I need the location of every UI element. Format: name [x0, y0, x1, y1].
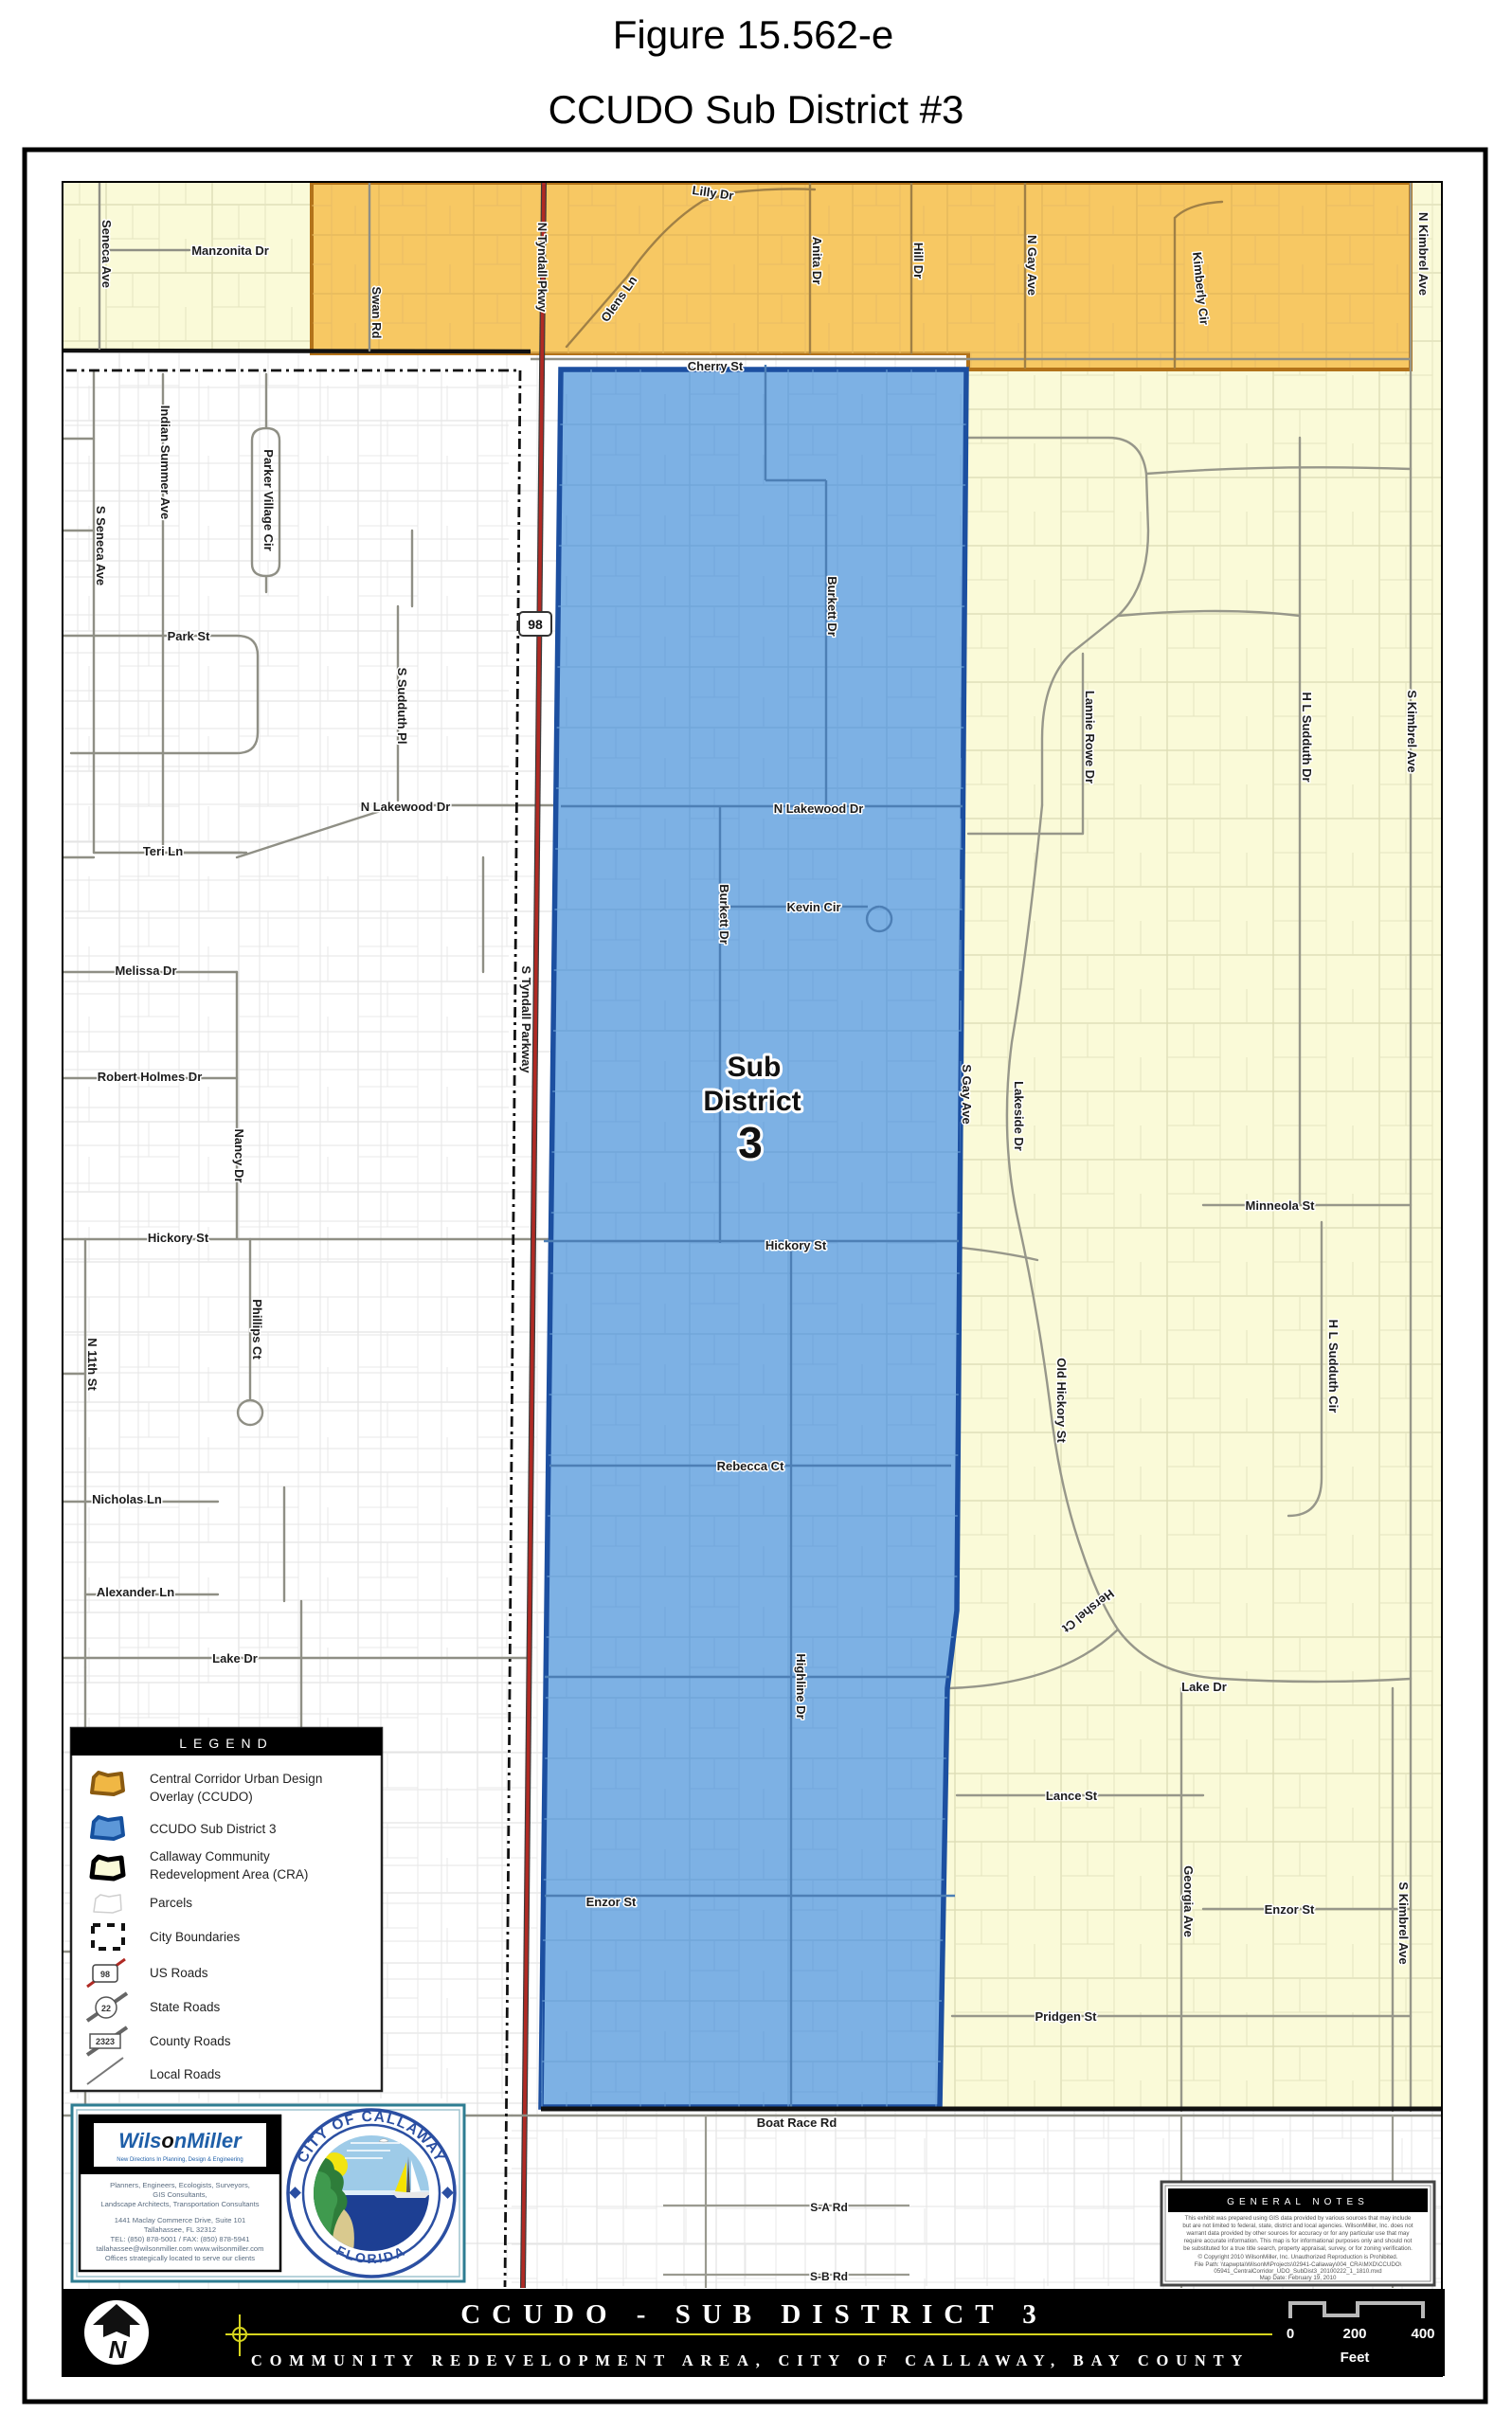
svg-text:Parcels: Parcels	[150, 1896, 192, 1910]
svg-text:Callaway Community: Callaway Community	[150, 1849, 270, 1864]
svg-text:1441 Maclay Commerce Drive, Su: 1441 Maclay Commerce Drive, Suite 101	[115, 2216, 245, 2224]
svg-text:Offices strategically located: Offices strategically located to serve o…	[105, 2254, 255, 2262]
svg-text:State Roads: State Roads	[150, 2000, 221, 2014]
svg-text:Georgia Ave: Georgia Ave	[1181, 1865, 1196, 1937]
svg-text:Indian Summer Ave: Indian Summer Ave	[158, 405, 172, 519]
svg-text:New Directions In Planning, De: New Directions In Planning, Design & Eng…	[117, 2157, 243, 2163]
svg-text:warrant data provided by other: warrant data provided by other sources f…	[1186, 2230, 1411, 2237]
svg-text:N Lakewood Dr: N Lakewood Dr	[774, 801, 864, 816]
svg-text:require accurate information.: require accurate information. This map i…	[1184, 2238, 1413, 2244]
svg-text:but are not limited to federal: but are not limited to federal, state, d…	[1182, 2223, 1413, 2229]
svg-text:H L Sudduth Dr: H L Sudduth Dr	[1300, 692, 1314, 782]
svg-text:Anita Dr: Anita Dr	[810, 237, 824, 285]
svg-text:0: 0	[1287, 2326, 1294, 2342]
svg-text:Cherry St: Cherry St	[688, 359, 744, 373]
svg-text:Kevin Cir: Kevin Cir	[786, 900, 840, 914]
svg-text:District: District	[703, 1086, 801, 1117]
svg-text:Enzor St: Enzor St	[586, 1895, 637, 1909]
svg-text:City Boundaries: City Boundaries	[150, 1930, 241, 1944]
svg-text:CCUDO Sub District #3: CCUDO Sub District #3	[549, 87, 964, 132]
svg-text:Lake Dr: Lake Dr	[1181, 1680, 1227, 1694]
svg-text:Rebecca Ct: Rebecca Ct	[717, 1459, 784, 1473]
svg-text:TEL: (850) 878-5001 / FAX: (85: TEL: (850) 878-5001 / FAX: (850) 878-594…	[111, 2235, 250, 2243]
svg-text:S Seneca Ave: S Seneca Ave	[94, 506, 108, 585]
svg-text:N Lakewood Dr: N Lakewood Dr	[361, 800, 451, 814]
svg-text:Local Roads: Local Roads	[150, 2067, 221, 2081]
svg-text:400: 400	[1411, 2326, 1434, 2342]
svg-text:S Gay Ave: S Gay Ave	[960, 1064, 974, 1124]
svg-text:CCUDO Sub District 3: CCUDO Sub District 3	[150, 1822, 277, 1836]
svg-text:© Copyright 2010 WilsonMiller,: © Copyright 2010 WilsonMiller, Inc. Unau…	[1198, 2254, 1398, 2260]
svg-text:Old Hickory St: Old Hickory St	[1054, 1358, 1069, 1443]
svg-text:Pridgen St: Pridgen St	[1035, 2009, 1097, 2024]
svg-text:S Kimbrel Ave: S Kimbrel Ave	[1405, 690, 1419, 772]
svg-text:Nicholas Ln: Nicholas Ln	[92, 1492, 162, 1506]
svg-text:3: 3	[738, 1118, 763, 1167]
svg-text:98: 98	[528, 617, 543, 632]
svg-text:Lance St: Lance St	[1046, 1789, 1098, 1803]
svg-text:CCUDO - SUB DISTRICT 3: CCUDO - SUB DISTRICT 3	[460, 2299, 1048, 2330]
svg-text:2323: 2323	[96, 2037, 115, 2046]
svg-text:Hill Dr: Hill Dr	[911, 243, 926, 279]
svg-text:Seneca Ave: Seneca Ave	[99, 220, 114, 288]
svg-text:22: 22	[101, 2004, 111, 2013]
svg-text:98: 98	[100, 1970, 110, 1979]
svg-text:Burkett Dr: Burkett Dr	[825, 576, 839, 637]
svg-text:Phillips Ct: Phillips Ct	[250, 1299, 264, 1360]
svg-text:be substituted for a true titl: be substituted for a true title search, …	[1183, 2245, 1413, 2252]
svg-text:Map Date: February 19, 2010: Map Date: February 19, 2010	[1260, 2275, 1337, 2281]
svg-text:S Tyndall Parkway: S Tyndall Parkway	[519, 965, 533, 1073]
svg-text:Feet: Feet	[1341, 2350, 1370, 2366]
svg-text:Nancy Dr: Nancy Dr	[232, 1128, 246, 1182]
svg-text:Hickory St: Hickory St	[765, 1238, 827, 1252]
svg-text:Overlay (CCUDO): Overlay (CCUDO)	[150, 1790, 253, 1804]
svg-text:Melissa Dr: Melissa Dr	[115, 963, 176, 978]
svg-text:Lannie Rowe Dr: Lannie Rowe Dr	[1083, 691, 1097, 783]
svg-text:Manzonita Dr: Manzonita Dr	[191, 243, 269, 258]
svg-text:WilsonMiller: WilsonMiller	[118, 2129, 243, 2152]
svg-text:Alexander Ln: Alexander Ln	[97, 1585, 174, 1599]
svg-text:S-A Rd: S-A Rd	[810, 2201, 848, 2214]
svg-text:S Sudduth Pl: S Sudduth Pl	[395, 668, 409, 745]
svg-text:Sub: Sub	[728, 1052, 782, 1083]
svg-text:N Kimbrel Ave: N Kimbrel Ave	[1416, 212, 1431, 296]
svg-text:GIS Consultants,: GIS Consultants,	[153, 2190, 207, 2199]
svg-text:S Kimbrel Ave: S Kimbrel Ave	[1396, 1882, 1411, 1964]
svg-text:N 11th St: N 11th St	[85, 1338, 99, 1391]
svg-text:LEGEND: LEGEND	[179, 1736, 274, 1751]
svg-text:GENERAL NOTES: GENERAL NOTES	[1227, 2197, 1369, 2207]
svg-text:Landscape Architects, Transpor: Landscape Architects, Transportation Con…	[100, 2200, 259, 2208]
svg-text:H L Sudduth Cir: H L Sudduth Cir	[1326, 1320, 1341, 1414]
svg-text:Parker Village Cir: Parker Village Cir	[261, 449, 276, 550]
svg-text:Highline Dr: Highline Dr	[794, 1653, 808, 1719]
svg-text:US Roads: US Roads	[150, 1966, 208, 1980]
svg-text:200: 200	[1342, 2326, 1366, 2342]
svg-text:Lake Dr: Lake Dr	[212, 1651, 258, 1666]
svg-text:Redevelopment Area (CRA): Redevelopment Area (CRA)	[150, 1867, 308, 1882]
svg-text:Central Corridor Urban Design: Central Corridor Urban Design	[150, 1772, 322, 1786]
svg-text:Minneola St: Minneola St	[1246, 1198, 1316, 1213]
svg-text:Planners, Engineers, Ecologist: Planners, Engineers, Ecologists, Surveyo…	[110, 2181, 250, 2189]
svg-text:Boat Race Rd: Boat Race Rd	[757, 2116, 837, 2130]
svg-text:N: N	[109, 2335, 128, 2364]
svg-text:N Gay Ave: N Gay Ave	[1025, 235, 1039, 296]
svg-text:Swan Rd: Swan Rd	[369, 287, 384, 339]
svg-text:Enzor St: Enzor St	[1265, 1902, 1315, 1917]
svg-text:Robert Holmes Dr: Robert Holmes Dr	[98, 1070, 203, 1084]
svg-text:Lakeside Dr: Lakeside Dr	[1012, 1081, 1026, 1151]
svg-text:This exhibit was prepared usin: This exhibit was prepared using GIS data…	[1185, 2215, 1412, 2222]
svg-text:S-B Rd: S-B Rd	[810, 2270, 848, 2283]
svg-text:File Path: \\tapwpta\WilsonM\P: File Path: \\tapwpta\WilsonM\Projects\02…	[1195, 2261, 1402, 2268]
svg-text:Park St: Park St	[168, 629, 210, 643]
svg-text:Hickory St: Hickory St	[148, 1231, 209, 1245]
svg-text:County Roads: County Roads	[150, 2034, 231, 2048]
svg-text:Teri Ln: Teri Ln	[143, 844, 183, 858]
svg-text:COMMUNITY REDEVELOPMENT AREA,: COMMUNITY REDEVELOPMENT AREA, CITY OF CA…	[251, 2351, 1250, 2369]
svg-text:Figure 15.562-e: Figure 15.562-e	[613, 12, 894, 57]
svg-text:Tallahassee, FL 32312: Tallahassee, FL 32312	[144, 2225, 216, 2234]
svg-text:Burkett Dr: Burkett Dr	[717, 884, 731, 945]
svg-text:N Tyndall Pkwy: N Tyndall Pkwy	[535, 223, 549, 313]
svg-text:05941_CentralCorridor_UDO_SubD: 05941_CentralCorridor_UDO_SubDist3_20100…	[1214, 2268, 1382, 2275]
svg-text:tallahassee@wilsonmiller.com: tallahassee@wilsonmiller.com www.wilsonm…	[97, 2244, 264, 2253]
